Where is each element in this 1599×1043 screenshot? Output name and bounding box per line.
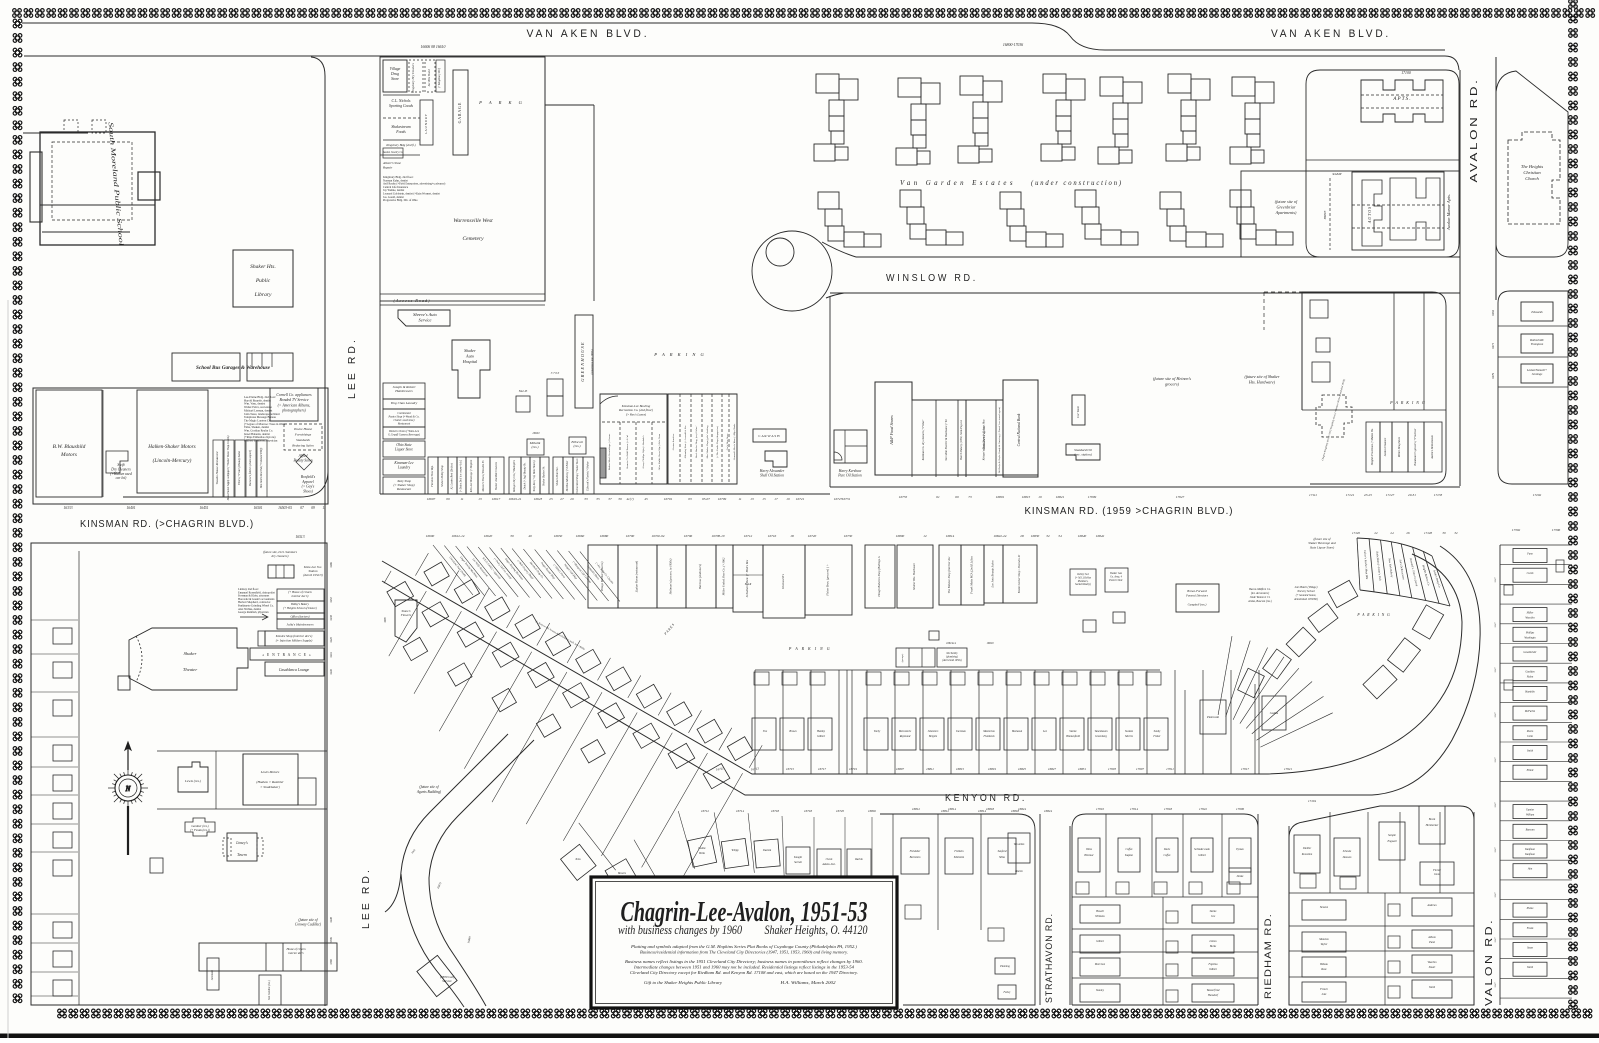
- svg-text:Sunby: Sunby: [1154, 730, 1162, 733]
- svg-text:17010: 17010: [1096, 807, 1104, 811]
- svg-text:Semple: Semple: [1388, 834, 1397, 837]
- svg-text:Dawson: Dawson: [1342, 856, 1352, 859]
- svg-text:Fujelma: Fujelma: [1208, 963, 1219, 966]
- svg-text:Weiss: Weiss: [1086, 848, 1092, 851]
- svg-text:Laundry: Laundry: [397, 466, 411, 470]
- svg-text:16612-14: 16612-14: [452, 534, 465, 538]
- svg-text:STRATHAVON RD.: STRATHAVON RD.: [1044, 913, 1054, 1003]
- svg-text:61: 61: [936, 495, 940, 499]
- svg-text:Shaker Hts. Hardware: Shaker Hts. Hardware: [912, 562, 916, 590]
- svg-text:Pank: Pank: [1428, 941, 1435, 944]
- svg-text:Intermediate changes between 1: Intermediate changes between 1951 and 19…: [633, 965, 854, 970]
- svg-text:Bowers: Bowers: [618, 872, 626, 875]
- svg-text:26: 26: [1406, 531, 1410, 535]
- svg-text:Hospital: Hospital: [462, 359, 478, 364]
- svg-text:17006: 17006: [1236, 807, 1244, 811]
- svg-text:Connecticut Shop (+Some Town: Connecticut Shop (+Some Town: [576, 458, 579, 493]
- svg-text:19: 19: [786, 497, 790, 501]
- svg-text:17120: 17120: [1352, 531, 1360, 535]
- svg-text:Fox's Shoe Store: Fox's Shoe Store: [726, 433, 729, 452]
- svg-text:3380: 3380: [330, 959, 333, 965]
- svg-text:Tems: Tems: [575, 858, 580, 861]
- svg-text:Restaurant: Restaurant: [396, 487, 411, 491]
- svg-text:Odbert: Odbert: [1209, 968, 1217, 971]
- svg-text:17017: 17017: [1241, 767, 1249, 771]
- svg-text:16822-24: 16822-24: [994, 534, 1007, 538]
- svg-text:Apparel: Apparel: [301, 480, 313, 484]
- svg-text:32: 32: [1046, 534, 1050, 538]
- svg-text:car lot): car lot): [116, 476, 127, 480]
- svg-text:Allison: Allison: [1427, 936, 1436, 939]
- svg-text:Gilbert: Gilbert: [1198, 854, 1206, 857]
- svg-text:Smith: Smith: [1527, 750, 1534, 753]
- svg-text:Store: Store: [391, 77, 399, 81]
- svg-text:16706: 16706: [684, 534, 693, 538]
- svg-text:Horton Jewelers: Horton Jewelers: [672, 434, 675, 452]
- svg-text:16712: 16712: [744, 534, 753, 538]
- svg-text:(+Halken used: (+Halken used: [110, 472, 132, 476]
- svg-text:3527: 3527: [1494, 667, 1497, 673]
- svg-text:3452: 3452: [330, 597, 333, 603]
- svg-text:Johnsters: Johnsters: [928, 730, 939, 733]
- svg-text:16812: 16812: [912, 807, 920, 811]
- svg-text:27: 27: [560, 497, 564, 501]
- svg-text:09: 09: [311, 506, 315, 510]
- svg-text:Flumbeck: Flumbeck: [982, 735, 995, 738]
- svg-text:Washingtn: Washingtn: [1524, 636, 1536, 639]
- svg-text:WINSLOW RD.: WINSLOW RD.: [886, 273, 978, 284]
- svg-text:McFarlin: McFarlin: [1524, 710, 1536, 713]
- svg-text:P A R K I N G: P A R K I N G: [653, 352, 706, 357]
- svg-text:LEE RD.: LEE RD.: [347, 337, 358, 399]
- svg-text:Torby: Torby: [874, 730, 881, 733]
- svg-text:RIEDHAM RD.: RIEDHAM RD.: [1263, 913, 1273, 999]
- svg-text:12: 12: [923, 534, 927, 538]
- svg-text:Wasciles: Wasciles: [1525, 617, 1534, 620]
- svg-text:30: 30: [510, 534, 514, 538]
- svg-text:Miller United Shoe Co. (+1962: Miller United Shoe Co. (+1962: [722, 557, 726, 596]
- svg-text:07: 07: [300, 506, 304, 510]
- svg-text:(Hudson > Rambler: (Hudson > Rambler: [256, 780, 284, 784]
- svg-text:Miller: Miller: [1526, 612, 1535, 615]
- svg-text:Hornbecker: Hornbecker: [1425, 824, 1440, 827]
- svg-text:15: 15: [762, 497, 766, 501]
- svg-text:3527: 3527: [1494, 982, 1497, 988]
- svg-text:16815: 16815: [956, 767, 964, 771]
- svg-text:Rosario Ciri Wall Tavern (+A L: Rosario Ciri Wall Tavern (+A Lal: [626, 435, 629, 470]
- svg-text:Plume: Plume: [1526, 907, 1535, 910]
- svg-text:Greenberg: Greenberg: [1095, 735, 1108, 738]
- svg-text:(plumbing): (plumbing): [946, 656, 958, 659]
- svg-text:Hamblin: Hamblin: [1524, 690, 1535, 693]
- svg-text:1681414: 1681414: [946, 642, 956, 645]
- svg-text:Ohio State: Ohio State: [396, 443, 412, 447]
- svg-text:16811: 16811: [926, 767, 934, 771]
- svg-text:16827: 16827: [1048, 767, 1056, 771]
- svg-text:Han Alarm Rest Out (+Colonial: Han Alarm Rest Out (+Colonial PDQ): [260, 448, 263, 490]
- svg-text:Metzger Dry Cls (+Rudolph's: Metzger Dry Cls (+Rudolph's: [513, 460, 516, 493]
- svg-text:Avalon Cleaners: Avalon Cleaners: [1384, 438, 1387, 458]
- svg-text:Planning: Planning: [999, 965, 1010, 968]
- svg-text:Van Garden Estates: Van Garden Estates: [900, 179, 1016, 187]
- svg-text:16721: 16721: [796, 497, 805, 501]
- svg-text:Drug: Drug: [390, 72, 399, 76]
- svg-text:Kaufman: Kaufman: [1524, 848, 1536, 851]
- svg-text:William: William: [1526, 814, 1534, 817]
- svg-text:Mar Shaker Shop (girls' clothi: Mar Shaker Shop (girls' clothing: [706, 425, 709, 460]
- svg-text:Kinslee Shop (interior dec's): Kinslee Shop (interior dec's): [275, 634, 313, 638]
- svg-text:Flowers: Flowers: [400, 613, 412, 617]
- svg-text:G.Graeff Camera Beverage): G.Graeff Camera Beverage): [388, 434, 420, 437]
- svg-text:George Reinlieb, physician: George Reinlieb, physician: [238, 611, 269, 614]
- svg-text:Burnece's fabrics (chain exper: Burnece's fabrics (chain expert): [249, 450, 252, 486]
- svg-text:Shaker Hobby Shop: Shaker Hobby Shop: [441, 465, 444, 487]
- svg-text:Rose: Rose: [1320, 968, 1327, 971]
- svg-text:17027: 17027: [1176, 495, 1185, 499]
- svg-text:Bancum: Bancum: [1526, 828, 1535, 831]
- svg-text:Progressive Bldg. Div. of Ohio: Progressive Bldg. Div. of Ohio: [383, 199, 418, 202]
- svg-text:35: 35: [596, 497, 600, 501]
- svg-text:Shaker Barber Sh.: Shaker Barber Sh.: [543, 466, 546, 486]
- svg-text:17202: 17202: [1533, 493, 1542, 497]
- svg-text:Shakestream: Shakestream: [391, 125, 411, 129]
- svg-text:Lewis (res.): Lewis (res.): [184, 779, 202, 783]
- svg-text:Greenbriar: Greenbriar: [1277, 205, 1296, 210]
- svg-text:Mansion: Mansion: [1318, 938, 1329, 941]
- svg-text:LEE RD.: LEE RD.: [361, 867, 372, 929]
- svg-text:Brdeau: Brdeau: [1320, 963, 1328, 966]
- svg-text:Shaker Hotel Svc.: Shaker Hotel Svc.: [556, 466, 559, 486]
- svg-text:30: 30: [1442, 531, 1446, 535]
- svg-text:Tuxedo House Restaurant: Tuxedo House Restaurant: [215, 451, 219, 484]
- svg-text:17111: 17111: [1309, 493, 1317, 497]
- svg-text:Blumenfield: Blumenfield: [1066, 735, 1080, 738]
- svg-text:17306: 17306: [1552, 528, 1561, 532]
- svg-text:16715: 16715: [786, 767, 794, 771]
- svg-text:> Studebaker): > Studebaker): [260, 785, 280, 789]
- svg-text:Office (doctors): Office (doctors): [290, 615, 309, 619]
- svg-text:Hunsdorf: Hunsdorf: [1207, 994, 1219, 997]
- svg-text:3609: 3609: [384, 617, 387, 623]
- svg-text:33: 33: [584, 497, 588, 501]
- svg-text:« E N T R A N C E »: « E N T R A N C E »: [262, 653, 311, 657]
- svg-text:Repair: Repair: [382, 165, 393, 169]
- svg-text:17100: 17100: [1401, 71, 1411, 75]
- svg-text:(+Kingsbury DC): (+Kingsbury DC): [438, 68, 441, 88]
- svg-text:Ben's Barber Shop, (res) Fishe: Ben's Barber Shop, (res) Fisher': [695, 425, 698, 458]
- svg-text:16619-21: 16619-21: [509, 497, 522, 501]
- svg-text:Village Market (grocers): Village Market (grocers): [600, 562, 604, 592]
- svg-text:17021: 17021: [1284, 767, 1292, 771]
- svg-text:Christian: Christian: [1523, 170, 1541, 175]
- svg-text:Cornell Co. appliances: Cornell Co. appliances: [276, 393, 312, 397]
- svg-text:Bondwarer's grocers (+Fred Ger: Bondwarer's grocers (+Fred Ger: [1414, 427, 1417, 465]
- svg-text:40: 40: [528, 534, 532, 538]
- svg-text:Service: Service: [419, 318, 432, 323]
- svg-text:Sanford: Sanford: [998, 850, 1007, 853]
- svg-text:P A R K G: P A R K G: [478, 100, 525, 105]
- svg-text:Veachen: Veachen: [1428, 961, 1438, 964]
- svg-text:Shell Oil Station: Shell Oil Station: [760, 474, 784, 478]
- svg-text:05-07: 05-07: [702, 497, 710, 501]
- svg-text:Tanenbaum: Tanenbaum: [1095, 730, 1108, 733]
- svg-text:Starke: Starke: [1069, 730, 1077, 733]
- svg-text:24: 24: [1390, 531, 1394, 535]
- svg-text:(int. decorators): (int. decorators): [1251, 592, 1269, 595]
- svg-text:Kastman Co. dry cleaners (+Fis: Kastman Co. dry cleaners (+Fisher': [922, 419, 925, 461]
- svg-text:Schlader-main: Schlader-main: [1194, 848, 1210, 851]
- svg-text:3479: 3479: [1491, 373, 1495, 380]
- svg-text:Ting Chan Laundry: Ting Chan Laundry: [391, 401, 418, 405]
- svg-text:Bernstein: Bernstein: [910, 856, 921, 859]
- svg-text:16720: 16720: [808, 534, 817, 538]
- svg-text:Nalon: Nalon: [1526, 676, 1534, 679]
- svg-text:Campbell (res.): Campbell (res.): [1188, 603, 1207, 607]
- svg-text:3486: 3486: [330, 562, 333, 568]
- svg-text:29: 29: [570, 497, 574, 501]
- svg-text:Shaker: Shaker: [184, 651, 197, 656]
- svg-text:N: N: [125, 785, 131, 793]
- svg-text:17009: 17009: [1088, 495, 1097, 499]
- svg-text:Edwards: Edwards: [1530, 310, 1543, 314]
- svg-text:Library: Library: [254, 292, 272, 298]
- svg-text:(+Dairy Dell ice cream+b.b.): (+Dairy Dell ice cream+b.b.): [460, 460, 463, 492]
- svg-text:16755: 16755: [899, 495, 908, 499]
- svg-text:AVALON RD.: AVALON RD.: [1469, 78, 1480, 183]
- svg-text:Shaker: Shaker: [464, 348, 476, 353]
- svg-text:16714: 16714: [736, 809, 744, 813]
- svg-text:(future site of: (future site of: [298, 918, 318, 922]
- svg-text:16800-17036: 16800-17036: [1003, 43, 1023, 47]
- svg-text:34: 34: [1058, 534, 1062, 538]
- svg-text:16800: 16800: [896, 534, 905, 538]
- svg-text:Rachin: Rachin: [854, 858, 863, 861]
- svg-text:17018: 17018: [1164, 807, 1172, 811]
- svg-text:Linton: Linton: [1208, 940, 1217, 943]
- svg-text:69: 69: [955, 495, 959, 499]
- svg-text:Hamby: Hamby: [816, 730, 826, 733]
- svg-text:Church: Church: [1525, 176, 1539, 181]
- svg-text:Inceman: Inceman: [955, 730, 966, 733]
- svg-text:16513: 16513: [296, 535, 305, 539]
- svg-text:Liquor Store: Liquor Store: [394, 448, 414, 452]
- svg-text:Kistle Carter Shop / Sherwin-W: Kistle Carter Shop / Sherwin-W: [1017, 554, 1021, 594]
- svg-text:KINSMAN RD. (>CHAGRIN BLVD.): KINSMAN RD. (>CHAGRIN BLVD.): [80, 519, 254, 530]
- svg-text:Schnute: Schnute: [1343, 850, 1352, 853]
- svg-text:17: 17: [774, 497, 778, 501]
- svg-text:Gift to the Shaker Heights Pub: Gift to the Shaker Heights Public Librar…: [644, 980, 722, 985]
- svg-text:Hough Bakeries Shop (Bakings A: Hough Bakeries Shop (Bakings A: [877, 556, 881, 597]
- svg-text:Seam: Seam: [1527, 947, 1533, 950]
- svg-text:(+ Heights School of Dance): (+ Heights School of Dance): [283, 606, 316, 610]
- svg-text:VAN AKEN BLVD.: VAN AKEN BLVD.: [1271, 28, 1391, 40]
- svg-text:16701: 16701: [664, 497, 673, 501]
- svg-text:29-31: 29-31: [1408, 493, 1416, 497]
- svg-text:3527: 3527: [1494, 847, 1497, 853]
- svg-text:Jones: Jones: [1434, 873, 1440, 876]
- svg-text:Fisher Bros. (grocers) ( >: Fisher Bros. (grocers) ( >: [826, 564, 830, 596]
- svg-text:Towne House: Towne House: [294, 427, 313, 431]
- svg-text:Lewis Motors: Lewis Motors: [260, 770, 280, 774]
- svg-text:Taylor: Taylor: [1321, 943, 1329, 946]
- svg-text:Avalon Jewelry Co.: Avalon Jewelry Co.: [382, 151, 404, 154]
- svg-text:Gilbert: Gilbert: [1096, 940, 1104, 943]
- svg-text:Smith: Smith: [1527, 966, 1534, 969]
- svg-text:16730: 16730: [844, 534, 853, 538]
- svg-text:interior dec's: interior dec's: [288, 951, 304, 955]
- svg-text:16819: 16819: [988, 767, 996, 771]
- svg-text:Henry Phillips Gifts (+Bordalo: Henry Phillips Gifts (+Bordalo's: [642, 436, 645, 470]
- svg-text:Tasty-Kol (+A). Bake Stores): Tasty-Kol (+A). Bake Stores): [533, 460, 536, 491]
- svg-text:Hot Box Millinery (+d Peter: Hot Box Millinery (+d Peter: [566, 460, 569, 493]
- svg-text:Thompson: Thompson: [1531, 342, 1544, 346]
- svg-text:Shaker Hts.: Shaker Hts.: [250, 264, 276, 270]
- svg-text:B A R: B A R: [745, 583, 752, 586]
- svg-text:The Heights: The Heights: [1521, 164, 1544, 169]
- svg-text:(under construction): (under construction): [1031, 179, 1123, 187]
- svg-text:Milford Edmiston, physician: Milford Edmiston, physician: [244, 439, 278, 443]
- svg-text:(> Rex's Lanes): (> Rex's Lanes): [626, 412, 646, 416]
- svg-text:Edelstein: Edelstein: [953, 856, 965, 859]
- svg-text:Jennings: Jennings: [1532, 372, 1543, 376]
- svg-text:3 7 0 0: 3 7 0 0: [551, 371, 560, 375]
- svg-text:16501: 16501: [254, 506, 263, 510]
- svg-text:Bonfield's: Bonfield's: [301, 475, 316, 479]
- svg-text:Lee Jota Beauty Salon: Lee Jota Beauty Salon: [991, 560, 995, 588]
- svg-text:Lutz: Lutz: [1321, 993, 1328, 996]
- svg-text:School Bus Garages & Warehouse: School Bus Garages & Warehouse: [196, 365, 271, 371]
- svg-text:Sarratt: Sarratt: [794, 861, 802, 864]
- svg-text:Pearo: Pearo: [1526, 730, 1534, 733]
- svg-text:P A R K I N G: P A R K I N G: [1356, 613, 1390, 617]
- svg-text:(dem'd 1952/3): (dem'd 1952/3): [303, 573, 322, 577]
- svg-text:16401: 16401: [127, 506, 136, 510]
- svg-text:41(?): 41(?): [626, 497, 634, 501]
- svg-text:Gesabichler: Gesabichler: [1523, 651, 1537, 654]
- svg-text:Linsey's: Linsey's: [235, 841, 248, 845]
- svg-text:Morris: Morris: [1124, 735, 1133, 738]
- svg-text:16719: 16719: [849, 767, 857, 771]
- svg-text:A U T O S: A U T O S: [1367, 207, 1372, 224]
- svg-text:Curob: Curob: [1527, 572, 1534, 575]
- svg-text:KINSMAN RD. (1959 >CHAGRIN BLV: KINSMAN RD. (1959 >CHAGRIN BLVD.): [1025, 506, 1234, 517]
- svg-text:Pure Oil Station: Pure Oil Station: [837, 474, 862, 478]
- svg-text:17007: 17007: [1136, 767, 1144, 771]
- svg-text:Aroba, Bascom (res.): Aroba, Bascom (res.): [1247, 600, 1272, 603]
- svg-text:(dem'd mid 1950s): (dem'd mid 1950s): [942, 659, 961, 662]
- svg-text:C.L. Nichols: C.L. Nichols: [391, 99, 411, 103]
- svg-text:Zephyr Room (restaurant): Zephyr Room (restaurant): [635, 561, 639, 592]
- svg-text:16716: 16716: [768, 534, 777, 538]
- svg-text:16503-05: 16503-05: [278, 506, 292, 510]
- svg-text:16607: 16607: [427, 497, 436, 501]
- svg-text:3527: 3527: [1494, 712, 1497, 718]
- svg-text:Florer/: Florer/: [1432, 869, 1441, 872]
- svg-text:Suslam: Suslam: [1125, 730, 1133, 733]
- svg-text:16600: 16600: [426, 534, 435, 538]
- svg-text:Shaker Heights, O. 44120: Shaker Heights, O. 44120: [765, 923, 869, 937]
- svg-text:Serv-Rite Electric & Hardware: Serv-Rite Electric & Hardware (+Ki: [945, 419, 948, 460]
- svg-text:Standard Drug Co.: Standard Drug Co.: [982, 426, 986, 451]
- svg-text:16807: 16807: [896, 767, 904, 771]
- svg-text:22: 22: [1374, 531, 1378, 535]
- svg-text:17104: 17104: [1308, 799, 1316, 803]
- svg-text:Reducing Salon: Reducing Salon: [291, 444, 314, 448]
- svg-text:Starke: Starke: [1210, 910, 1218, 913]
- svg-text:Adams-Jost.: Adams-Jost.: [821, 863, 836, 866]
- svg-text:Jac Rite Hand: Jac Rite Hand: [427, 69, 431, 87]
- svg-text:Dry Cleaners: Dry Cleaners: [110, 467, 131, 471]
- svg-text:A P T S .: A P T S .: [1392, 97, 1410, 102]
- svg-text:3416: 3416: [330, 652, 333, 658]
- svg-text:45: 45: [644, 497, 648, 501]
- svg-text:Walton Men's Furnishings (+How: Walton Men's Furnishings (+Howar: [608, 434, 611, 470]
- svg-text:16820: 16820: [987, 642, 995, 645]
- svg-text:Burks: Burks: [1210, 945, 1216, 948]
- svg-text:Jinde Women's Cl.: Jinde Women's Cl.: [1250, 596, 1271, 599]
- svg-text:Business names reflect listing: Business names reflect listings in the 1…: [625, 959, 863, 964]
- svg-text:16831: 16831: [1078, 767, 1086, 771]
- svg-text:16802: 16802: [868, 809, 876, 813]
- svg-text:16660: 16660: [576, 534, 585, 538]
- svg-text:3471: 3471: [1491, 343, 1495, 350]
- svg-text:Fishleder: Fishleder: [909, 850, 922, 853]
- svg-text:Elliott: Elliott: [1526, 769, 1534, 772]
- svg-text:Feeley: Feeley: [1003, 991, 1012, 994]
- svg-text:Eyman: Eyman: [1235, 848, 1244, 851]
- svg-text:3527: 3527: [1494, 802, 1497, 808]
- svg-text:39: 39: [618, 497, 622, 501]
- svg-text:Avalon Manor Apts.: Avalon Manor Apts.: [1446, 194, 1451, 231]
- svg-text:16720: 16720: [836, 809, 844, 813]
- svg-text:16814: 16814: [946, 534, 955, 538]
- svg-text:Hts. Hardware): Hts. Hardware): [1248, 380, 1276, 385]
- svg-text:Frank: Frank: [1526, 927, 1534, 930]
- svg-text:3420: 3420: [330, 637, 333, 643]
- svg-text:Cemetery: Cemetery: [462, 236, 484, 242]
- svg-text:17022: 17022: [1199, 807, 1207, 811]
- svg-text:Masterton: Masterton: [982, 730, 995, 733]
- svg-text:(garage): (garage): [901, 654, 904, 663]
- svg-text:G R E E N H O U S E: G R E E N H O U S E: [580, 342, 585, 382]
- svg-text:The Kinslee Shop (interior dec: The Kinslee Shop (interior dec: [947, 556, 951, 593]
- svg-text:17302: 17302: [1512, 528, 1521, 532]
- svg-text:Foods: Foods: [395, 130, 406, 134]
- svg-text:P A R K I N G: P A R K I N G: [788, 646, 831, 651]
- svg-text:Alice Kathle Dress Shp (+Wm Gr: Alice Kathle Dress Shp (+Wm Graa: [658, 433, 661, 471]
- svg-text:(future site of Heinen's: (future site of Heinen's: [1153, 376, 1191, 381]
- svg-text:16824: 16824: [1018, 807, 1026, 811]
- svg-text:Allendorf Rest. (+Leonello's R: Allendorf Rest. (+Leonello's Res: [684, 426, 687, 460]
- svg-text:demolished 1950/60): demolished 1950/60): [1294, 598, 1318, 601]
- svg-text:Davis: Davis: [1163, 848, 1170, 851]
- svg-text:17128: 17128: [1424, 531, 1432, 535]
- svg-text:17011: 17011: [1166, 767, 1174, 771]
- svg-text:interior dec's): interior dec's): [292, 594, 309, 598]
- svg-text:(Lincoln-Mercury): (Lincoln-Mercury): [153, 457, 192, 464]
- svg-text:Kinsman-Lee: Kinsman-Lee: [393, 461, 414, 465]
- svg-text:Firestone Shoe Rep.: Firestone Shoe Rep.: [431, 465, 434, 488]
- svg-text:Village: Village: [390, 67, 401, 71]
- svg-text:Coffee: Coffee: [1163, 854, 1171, 857]
- svg-text:16680: 16680: [600, 534, 609, 538]
- svg-text:Fisher: Fisher: [1152, 735, 1161, 738]
- svg-text:Ahn: Ahn: [1527, 868, 1533, 871]
- svg-text:Shaker Just-Rite Cleaners: Shaker Just-Rite Cleaners: [495, 462, 498, 490]
- svg-text:16709: 16709: [718, 497, 727, 501]
- svg-text:Kaplan: Kaplan: [1124, 854, 1134, 857]
- svg-text:Shreve's Auto: Shreve's Auto: [413, 312, 438, 317]
